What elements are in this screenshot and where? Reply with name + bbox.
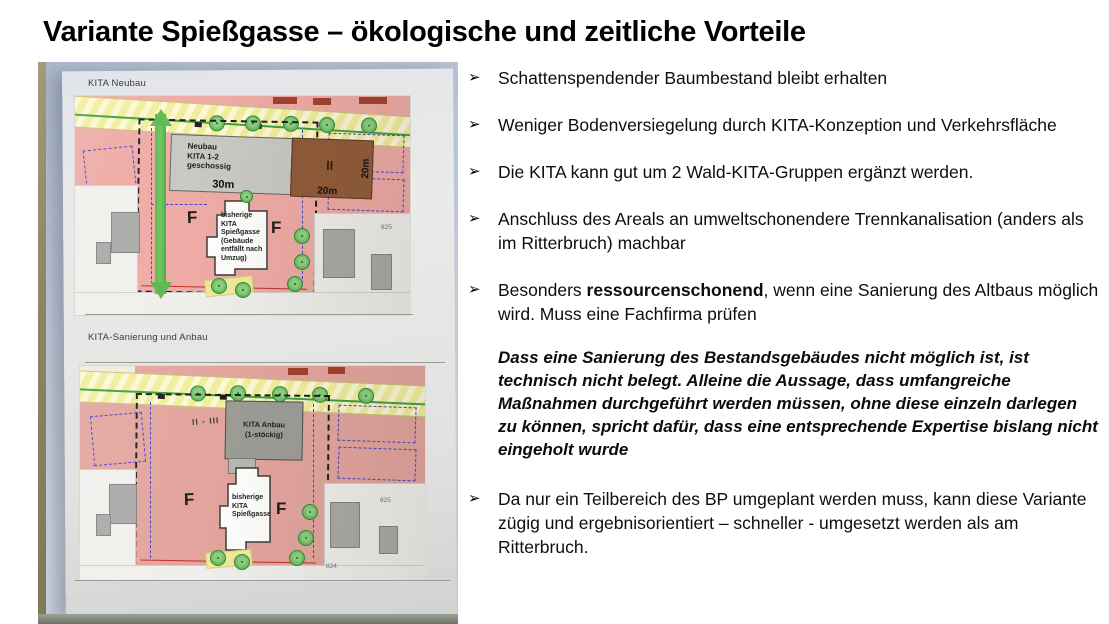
parcel-number: 825 [381, 224, 392, 231]
old-kita-label-line: bisherige [221, 212, 262, 221]
tree-icon [289, 550, 305, 566]
site-plans-photo: KITA Neubau [38, 62, 458, 624]
bullet-text: Da nur ein Teilbereich des BP umgeplant … [498, 487, 1102, 559]
old-kita-label-line: bisherige [232, 494, 271, 503]
anbau-label-line: (1-stöckig) [226, 429, 302, 440]
parcel-number: 824 [326, 563, 337, 570]
italic-note: Dass eine Sanierung des Bestandsgebäudes… [498, 346, 1098, 461]
bullet-text: Anschluss des Areals an umweltschonender… [498, 207, 1102, 255]
old-kita-label-line: (Gebäude [221, 238, 262, 247]
separator-line [85, 362, 445, 363]
bullet-item: ➢ Besonders ressourcenschonend, wenn ein… [468, 278, 1102, 326]
bullet-item: ➢ Weniger Bodenversiegelung durch KITA-K… [468, 113, 1102, 137]
building-envelope-boundary [337, 447, 416, 482]
old-kita-label: bisherige KITA Spießgasse (Gebäude entfä… [221, 212, 262, 264]
arrow-bullet-icon: ➢ [468, 278, 487, 326]
old-kita-label-line: Umzug) [221, 255, 262, 264]
arrow-bullet-icon: ➢ [468, 487, 487, 559]
neighbor-building [109, 484, 137, 524]
storeys-label: II - III [192, 415, 220, 427]
bullet-text: Die KITA kann gut um 2 Wald-KITA-Gruppen… [498, 160, 973, 184]
tree-icon [234, 554, 250, 570]
building-envelope-boundary [337, 405, 416, 444]
tree-icon [302, 504, 318, 520]
old-kita-label-line: Spießgasse [232, 511, 271, 520]
neighbor-building [111, 212, 140, 253]
bullet-item: ➢ Schattenspendender Baumbestand bleibt … [468, 66, 1102, 90]
neighbor-building [96, 514, 111, 536]
parcel-number: 825 [380, 497, 391, 504]
tree-icon [298, 530, 314, 546]
neighbor-roof [328, 367, 345, 374]
arrow-bullet-icon: ➢ [468, 66, 487, 90]
site-plan-neubau: 825 Neubau KITA 1-2 geschossig 30m II 20… [75, 96, 410, 315]
photo-bottom-edge [38, 614, 458, 624]
bullet-item: ➢ Die KITA kann gut um 2 Wald-KITA-Grupp… [468, 160, 1102, 184]
bullet-item: ➢ Anschluss des Areals an umweltschonend… [468, 207, 1102, 255]
neubau-building: Neubau KITA 1-2 geschossig 30m [169, 134, 293, 195]
arrow-bullet-icon: ➢ [468, 160, 487, 184]
bullet-text-bold: ressourcenschonend [587, 280, 764, 300]
neighbor-roof [288, 368, 308, 375]
old-kita-label: bisherige KITA Spießgasse [232, 494, 271, 520]
slide-title: Variante Spießgasse – ökologische und ze… [43, 16, 806, 49]
tree-icon [287, 276, 303, 292]
neighbor-building [96, 242, 111, 264]
neighbor-roof [313, 98, 331, 105]
tree-icon [210, 550, 226, 566]
neighbor-building [323, 229, 355, 278]
old-kita-label-line: Spießgasse [221, 229, 262, 238]
bullet-text: Schattenspendender Baumbestand bleibt er… [498, 66, 887, 90]
bullet-list: ➢ Schattenspendender Baumbestand bleibt … [468, 66, 1102, 582]
building-envelope-boundary [151, 128, 152, 284]
dimension-20m-vertical: 20m [360, 158, 372, 178]
site-plan-sanierung: 825 824 KITA Anbau (1-stöckig) II - III … [80, 366, 425, 580]
f-marker: F [276, 499, 286, 519]
plan1-label: KITA Neubau [88, 78, 146, 89]
anbau-building: KITA Anbau (1-stöckig) [224, 400, 303, 460]
green-arrow-icon [155, 114, 166, 294]
neighbor-building [379, 526, 398, 554]
bullet-text-pre: Besonders [498, 280, 587, 300]
old-kita-label-line: entfällt nach [221, 246, 262, 255]
arrow-bullet-icon: ➢ [468, 207, 487, 255]
old-kita-label-line: KITA [232, 503, 271, 512]
plan2-label: KITA-Sanierung und Anbau [88, 332, 208, 343]
separator-line [85, 314, 413, 315]
f-marker: F [187, 208, 198, 228]
neighbor-building [371, 254, 392, 290]
bullet-text: Besonders ressourcenschonend, wenn eine … [498, 278, 1102, 326]
building-envelope-boundary [150, 402, 151, 558]
old-kita-label-line: KITA [221, 221, 262, 230]
dimension-20m: 20m [317, 186, 337, 198]
tree-icon [211, 278, 227, 294]
bullet-item: ➢ Da nur ein Teilbereich des BP umgeplan… [468, 487, 1102, 559]
bullet-text: Weniger Bodenversiegelung durch KITA-Kon… [498, 113, 1057, 137]
arrow-bullet-icon: ➢ [468, 113, 487, 137]
tree-icon [294, 254, 310, 270]
tree-icon [294, 228, 310, 244]
tree-icon [240, 190, 253, 203]
f-marker: F [184, 490, 195, 510]
lower-parcel-strip [80, 566, 425, 580]
separator-line [75, 580, 450, 581]
f-marker: F [271, 218, 281, 238]
dimension-30m: 30m [212, 178, 234, 191]
neighbor-roof [273, 97, 297, 104]
neighbor-building [330, 502, 360, 548]
tree-icon [235, 282, 251, 298]
extension-building: II 20m 20m [290, 138, 374, 200]
neighbor-roof [359, 97, 387, 104]
storeys-label: II [326, 158, 334, 173]
photo-edge-strip [38, 62, 46, 624]
